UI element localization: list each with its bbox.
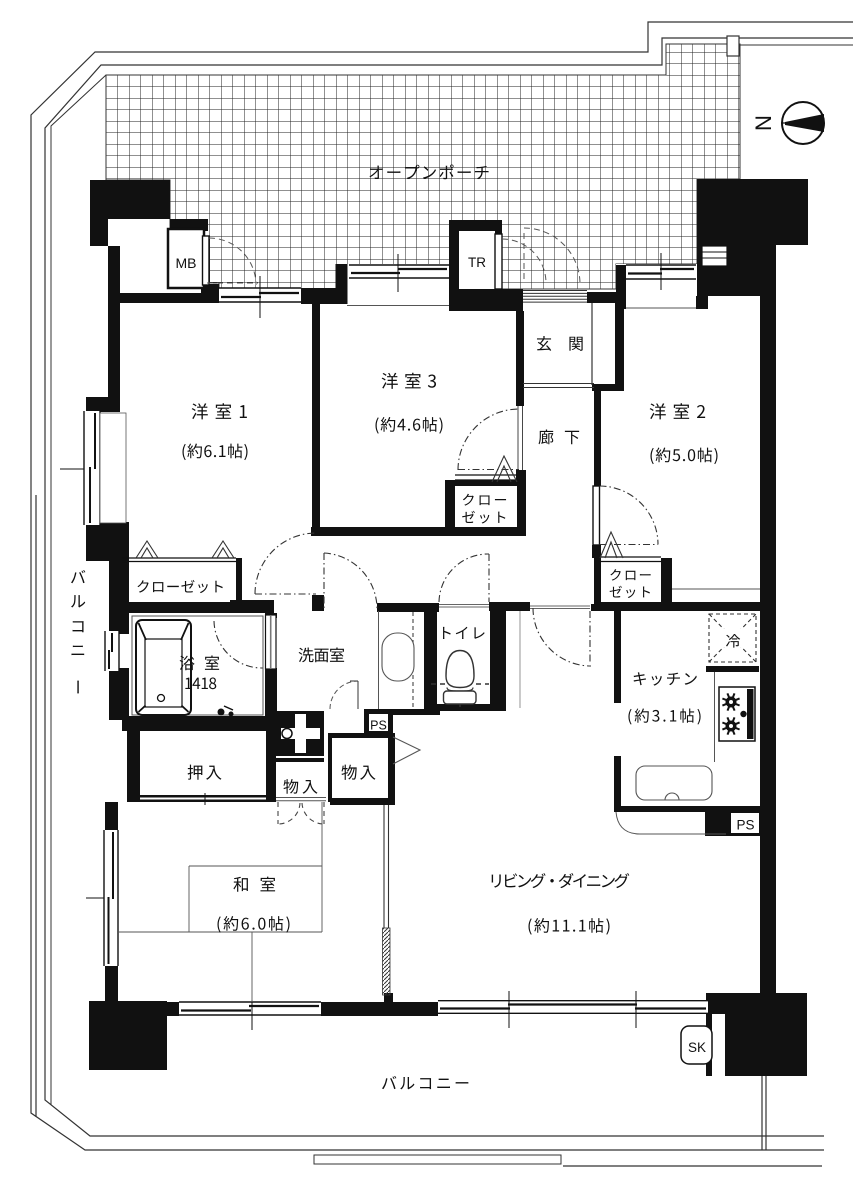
- svg-text:MB: MB: [176, 255, 197, 271]
- svg-text:PS: PS: [370, 719, 387, 733]
- svg-text:SK: SK: [688, 1040, 706, 1055]
- svg-text:PS: PS: [736, 818, 754, 833]
- svg-text:TR: TR: [468, 255, 486, 270]
- svg-text:N: N: [751, 115, 776, 131]
